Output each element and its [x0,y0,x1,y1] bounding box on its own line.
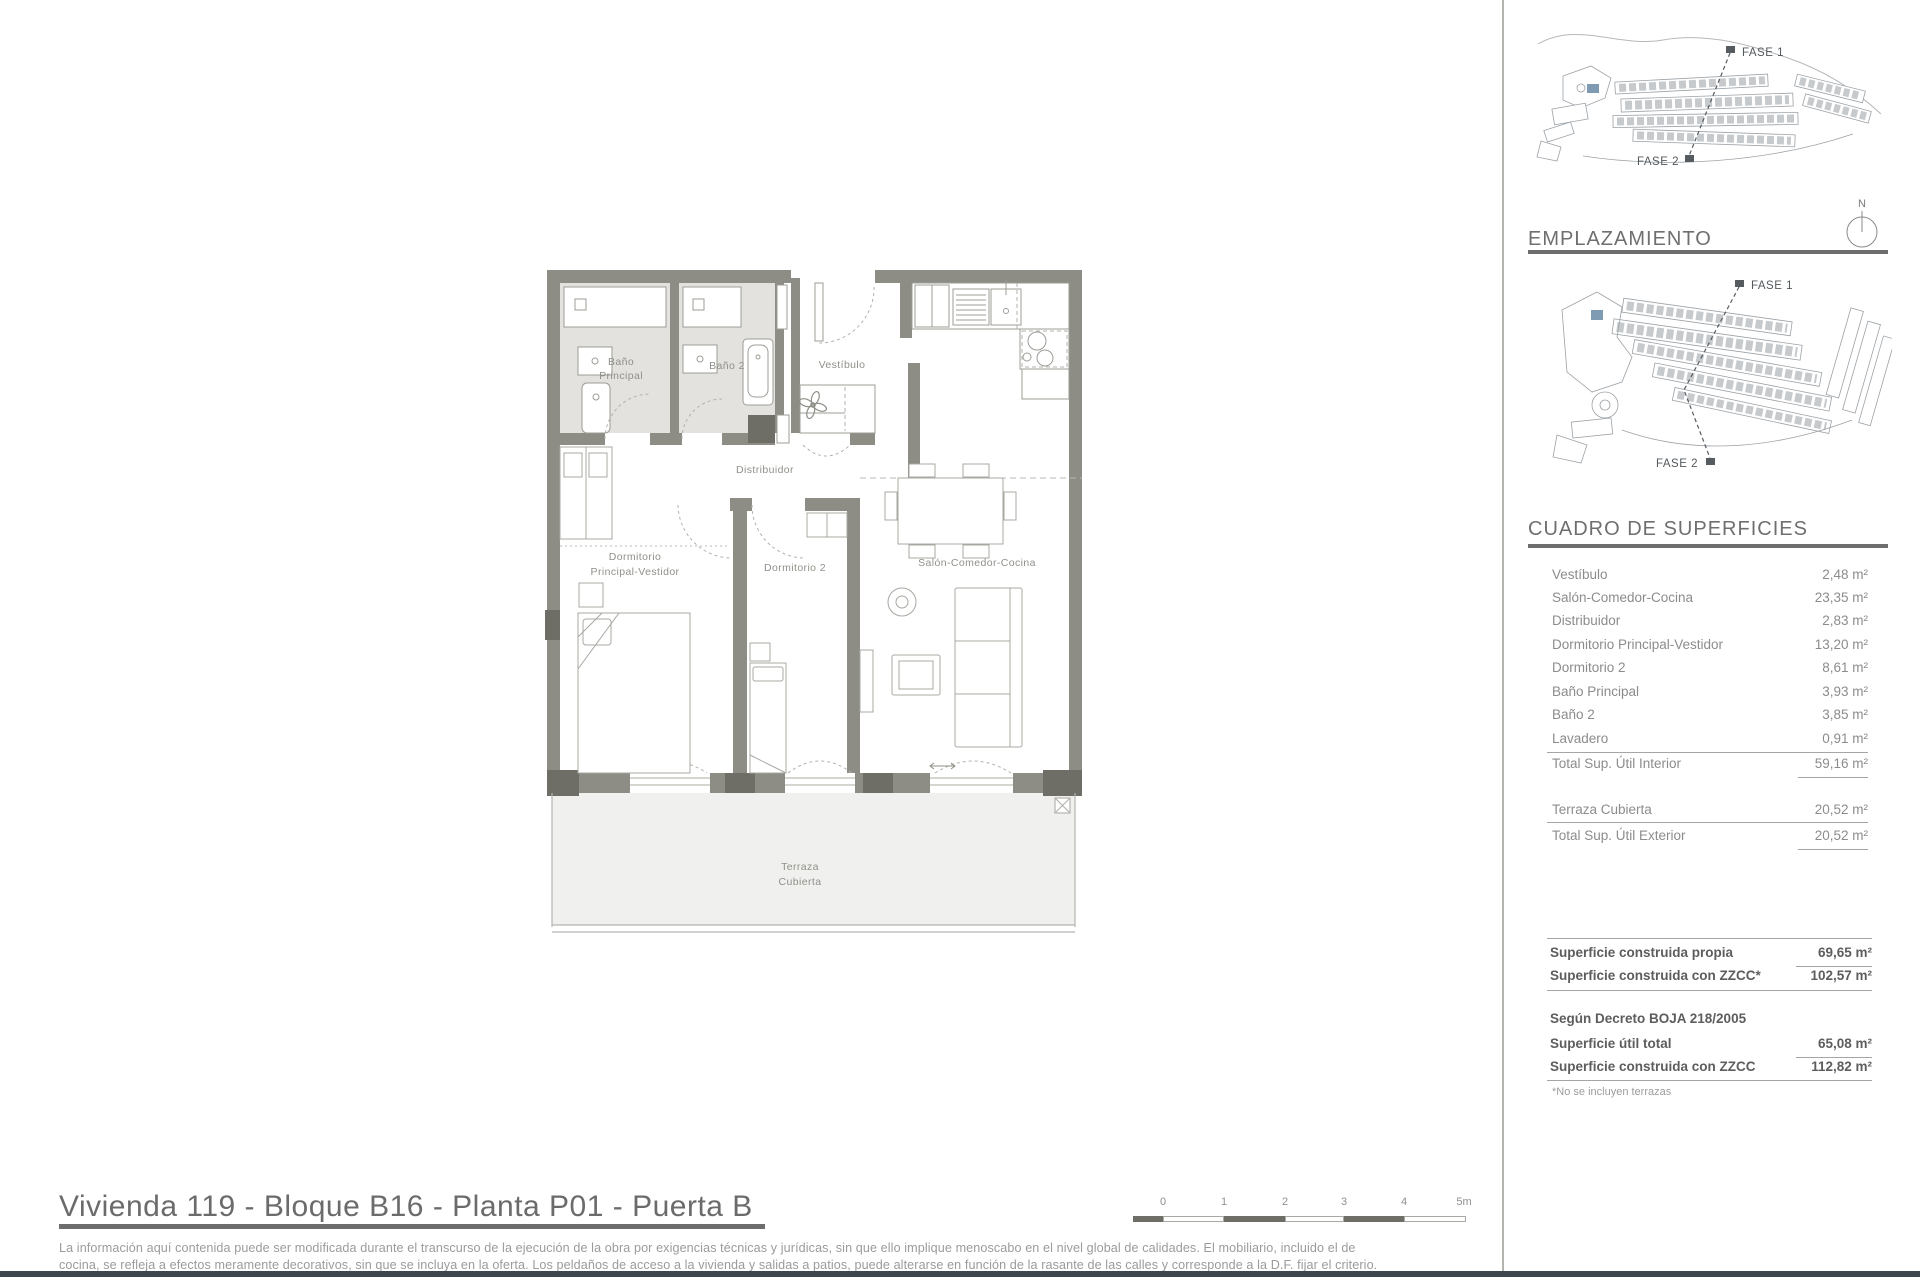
row-label: Superficie construida con ZZCC* [1550,968,1761,983]
terraza-row: Terraza Cubierta 20,52 m² [1552,802,1868,817]
row-value: 65,08 m² [1818,1036,1872,1051]
value-underline [1798,777,1868,778]
divider-line [1547,752,1868,753]
floor-plan: Baño Principal Baño 2 Vestíbulo Distribu… [545,265,1085,955]
divider-line [1547,990,1872,991]
room-label-bano-principal-2: Principal [599,370,643,382]
room-label-dorm-ppal-2: Principal-Vestidor [591,566,680,578]
room-label-dorm2: Dormitorio 2 [764,562,826,574]
room-label-salon: Salón-Comedor-Cocina [918,557,1036,569]
fase1-label: FASE 1 [1742,47,1784,59]
row-value: 23,35 m² [1815,590,1868,605]
scale-tick: 0 [1150,1196,1176,1208]
row-value: 102,57 m² [1810,968,1872,983]
title-underline [59,1224,765,1229]
row-label: Baño 2 [1552,707,1595,722]
row-label: Superficie construida propia [1550,945,1733,960]
furniture [560,447,1022,773]
table-row: Baño Principal 3,93 m² [1552,684,1868,699]
value-underline [1796,1057,1872,1058]
scale-tick: 2 [1272,1196,1298,1208]
table-row: Baño 2 3,85 m² [1552,707,1868,722]
fase2-label: FASE 2 [1656,458,1698,470]
row-label: Salón-Comedor-Cocina [1552,590,1693,605]
fase1-marker [1726,46,1735,53]
decreto-label: Según Decreto BOJA 218/2005 [1550,1011,1746,1026]
room-label-bano2: Baño 2 [709,360,745,372]
sidebar-divider [1502,0,1504,1271]
value-underline [1796,966,1872,967]
site-plan-top: FASE 1 FASE 2 [1523,6,1895,170]
room-label-terraza-2: Cubierta [779,876,822,888]
construida-propia-row: Superficie construida propia 69,65 m² [1550,945,1872,960]
north-compass-icon: N [1836,194,1892,254]
table-row: Lavadero 0,91 m² [1552,731,1868,746]
row-value: 69,65 m² [1818,945,1872,960]
footer-bar [0,1271,1920,1277]
terrace-floor [552,793,1075,925]
util-total-row: Superficie útil total 65,08 m² [1550,1036,1872,1051]
room-label-terraza: Terraza [781,861,819,873]
value-underline [1798,849,1868,850]
emplazamiento-heading: EMPLAZAMIENTO [1528,228,1712,251]
divider-line [1547,938,1872,939]
scale-segment [1404,1216,1466,1222]
divider-line [1547,1080,1872,1081]
row-label: Distribuidor [1552,613,1620,628]
row-value: 2,83 m² [1822,613,1868,628]
room-label-dorm-ppal: Dormitorio [609,551,661,563]
row-label: Total Sup. Útil Exterior [1552,828,1686,843]
divider-line [1547,822,1868,823]
row-label: Terraza Cubierta [1552,802,1652,817]
scale-segment [1163,1216,1224,1222]
row-label: Superficie construida con ZZCC [1550,1059,1756,1074]
row-value: 3,93 m² [1822,684,1868,699]
table-row: Salón-Comedor-Cocina 23,35 m² [1552,590,1868,605]
superficies-heading: CUADRO DE SUPERFICIES [1528,518,1808,541]
fase2-label: FASE 2 [1637,156,1679,168]
terrazas-note: *No se incluyen terrazas [1552,1086,1671,1098]
table-row: Distribuidor 2,83 m² [1552,613,1868,628]
row-value: 20,52 m² [1815,828,1868,843]
room-label-distribuidor: Distribuidor [736,464,794,476]
scale-segment [1285,1216,1344,1222]
svg-text:N: N [1858,198,1866,210]
fase1-label: FASE 1 [1751,280,1793,292]
construida-zzcc2-row: Superficie construida con ZZCC 112,82 m² [1550,1059,1872,1074]
row-value: 8,61 m² [1822,660,1868,675]
scale-tick: 1 [1211,1196,1237,1208]
highlighted-block [1591,310,1603,320]
row-value: 112,82 m² [1811,1059,1872,1074]
disclaimer-line1: La información aquí contenida puede ser … [59,1241,1356,1255]
row-label: Dormitorio 2 [1552,660,1626,675]
scale-segment [1344,1216,1404,1222]
decreto-heading: Según Decreto BOJA 218/2005 [1550,1011,1872,1026]
room-label-bano-principal: Baño [608,356,634,368]
row-value: 59,16 m² [1815,756,1868,771]
laundry-room [800,385,875,433]
row-label: Vestíbulo [1552,567,1608,582]
row-label: Total Sup. Útil Interior [1552,756,1681,771]
row-value: 2,48 m² [1822,567,1868,582]
scale-tick: 3 [1331,1196,1357,1208]
room-label-vestibulo: Vestíbulo [819,359,866,371]
row-label: Baño Principal [1552,684,1639,699]
window-sills [630,778,1013,785]
table-row: Vestíbulo 2,48 m² [1552,567,1868,582]
row-value: 13,20 m² [1815,637,1868,652]
row-value: 3,85 m² [1822,707,1868,722]
fase1-marker [1735,280,1744,287]
page-title: Vivienda 119 - Bloque B16 - Planta P01 -… [59,1190,753,1224]
row-label: Lavadero [1552,731,1608,746]
scale-segment [1224,1216,1285,1222]
row-label: Dormitorio Principal-Vestidor [1552,637,1723,652]
row-value: 0,91 m² [1822,731,1868,746]
emplazamiento-underline [1528,250,1888,254]
superficies-underline [1528,544,1888,548]
scale-segment [1133,1216,1163,1222]
table-row: Dormitorio Principal-Vestidor 13,20 m² [1552,637,1868,652]
row-value: 20,52 m² [1815,802,1868,817]
scale-tick: 5m [1451,1196,1477,1208]
table-row: Dormitorio 2 8,61 m² [1552,660,1868,675]
disclaimer-line2: cocina, se refleja a efectos meramente d… [59,1258,1377,1272]
fase2-marker [1706,458,1715,465]
construida-zzcc-row: Superficie construida con ZZCC* 102,57 m… [1550,968,1872,983]
fase2-marker [1685,155,1694,162]
highlighted-block [1587,84,1599,93]
site-plan-emplazamiento: FASE 1 FASE 2 [1532,270,1892,475]
kitchen [912,279,1069,399]
total-exterior-row: Total Sup. Útil Exterior 20,52 m² [1552,828,1868,843]
arrow-icon [930,763,955,769]
scale-tick: 4 [1391,1196,1417,1208]
total-interior-row: Total Sup. Útil Interior 59,16 m² [1552,756,1868,771]
row-label: Superficie útil total [1550,1036,1672,1051]
